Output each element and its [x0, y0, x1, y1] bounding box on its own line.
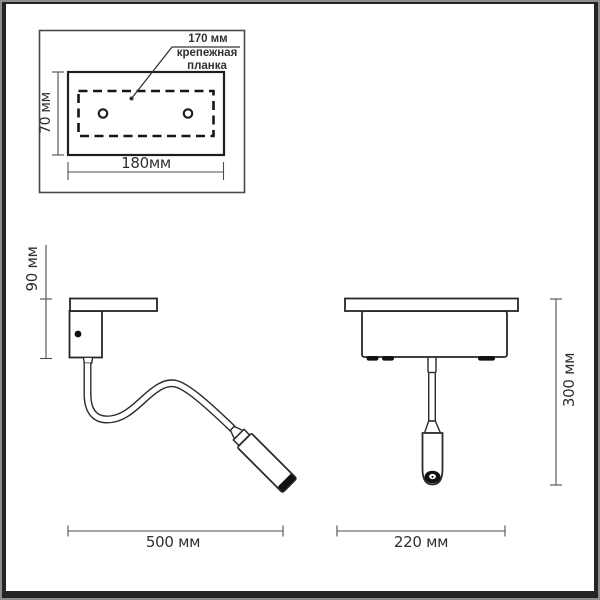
lamp-front-view — [337, 299, 562, 537]
side-body — [70, 311, 103, 358]
mounting-plate-outline — [68, 72, 224, 155]
dim-90-lines — [40, 245, 52, 359]
reach-dimension-label: 500 мм — [146, 533, 200, 551]
bracket-callout-label: крепежная планка — [177, 47, 238, 73]
gooseneck-stub — [84, 358, 93, 363]
screw-hole-left — [99, 109, 107, 117]
side-lamp-head — [225, 421, 296, 492]
foot-left-1 — [367, 356, 379, 361]
base-height-dimension-label: 90 мм — [23, 247, 41, 292]
side-shelf-plate — [70, 299, 157, 312]
drop-height-dimension-label: 300 мм — [560, 353, 578, 407]
hole-spacing-label: 170 мм — [188, 33, 227, 45]
lamp-side-view — [40, 245, 297, 537]
plate-width-dimension-label: 180мм — [121, 154, 171, 172]
bracket-callout-line1: крепежная — [177, 47, 238, 60]
base-width-dimension-label: 220 мм — [394, 533, 448, 551]
bracket-callout-line2: планка — [177, 60, 238, 73]
front-body — [362, 311, 507, 357]
switch-dot — [75, 331, 82, 338]
plate-height-dimension-label: 70 мм — [38, 92, 54, 134]
foot-left-2 — [382, 356, 394, 361]
front-neck — [425, 357, 441, 433]
drawing-linework — [0, 0, 600, 600]
foot-right — [478, 356, 495, 361]
screw-hole-right — [184, 109, 192, 117]
lens-center-dot — [431, 476, 433, 478]
technical-drawing-page: 170 мм крепежная планка 70 мм 180мм 90 м… — [0, 0, 600, 600]
gooseneck-inner — [88, 363, 234, 429]
leader-dot — [130, 97, 134, 101]
front-shelf-plate — [345, 299, 518, 312]
